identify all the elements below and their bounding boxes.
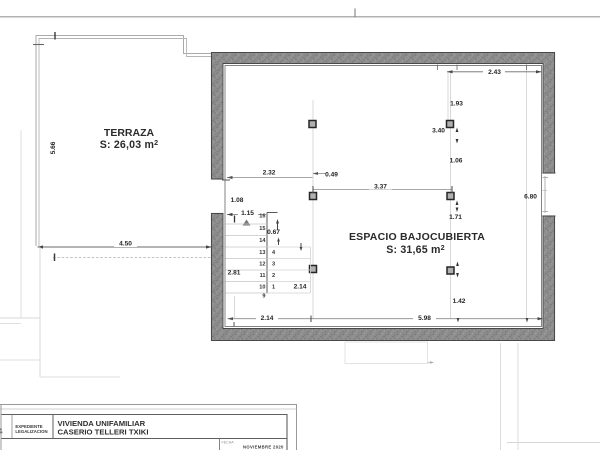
svg-text:1.71: 1.71 (449, 214, 462, 221)
svg-text:0.49: 0.49 (325, 172, 338, 179)
svg-text:2.14: 2.14 (261, 315, 274, 322)
svg-text:10: 10 (259, 285, 265, 291)
svg-text:2.14: 2.14 (294, 284, 307, 291)
svg-text:LEGALIZACION: LEGALIZACION (15, 429, 47, 434)
svg-text:2.81: 2.81 (228, 270, 241, 277)
svg-text:ESPACIO BAJOCUBIERTA: ESPACIO BAJOCUBIERTA (349, 231, 485, 243)
svg-text:1.42: 1.42 (453, 298, 466, 305)
svg-text:13: 13 (259, 250, 265, 256)
svg-text:1: 1 (272, 285, 275, 291)
svg-text:TERRAZA: TERRAZA (104, 127, 155, 139)
svg-text:5.66: 5.66 (50, 141, 57, 154)
svg-text:3: 3 (272, 262, 275, 268)
svg-text:11: 11 (260, 273, 266, 279)
svg-text:1.15: 1.15 (241, 210, 254, 217)
svg-text:9: 9 (262, 294, 265, 300)
svg-text:CASERIO TELLERI TXIKI: CASERIO TELLERI TXIKI (58, 428, 149, 437)
svg-text:2: 2 (272, 273, 275, 279)
svg-text:12: 12 (259, 262, 265, 268)
svg-text:6.80: 6.80 (524, 194, 537, 201)
svg-text:4.50: 4.50 (119, 241, 132, 248)
svg-text:5.98: 5.98 (418, 315, 431, 322)
svg-text:S: 31,65 m2: S: 31,65 m2 (386, 243, 445, 256)
svg-text:3.37: 3.37 (374, 184, 387, 191)
svg-text:NOVIEMBRE 2020: NOVIEMBRE 2020 (243, 445, 284, 450)
svg-text:0.67: 0.67 (267, 229, 280, 236)
svg-text:3.40: 3.40 (432, 128, 445, 135)
svg-text:14: 14 (259, 238, 266, 244)
svg-text:1.06: 1.06 (450, 158, 463, 165)
svg-text:15: 15 (259, 226, 265, 232)
svg-text:FECHA: FECHA (222, 441, 235, 445)
svg-text:1.93: 1.93 (450, 101, 463, 108)
svg-text:16: 16 (259, 214, 265, 220)
svg-text:2.32: 2.32 (263, 170, 276, 177)
svg-text:2.43: 2.43 (488, 69, 501, 76)
svg-text:S: 26,03 m2: S: 26,03 m2 (100, 138, 159, 151)
svg-text:1.08: 1.08 (231, 197, 244, 204)
